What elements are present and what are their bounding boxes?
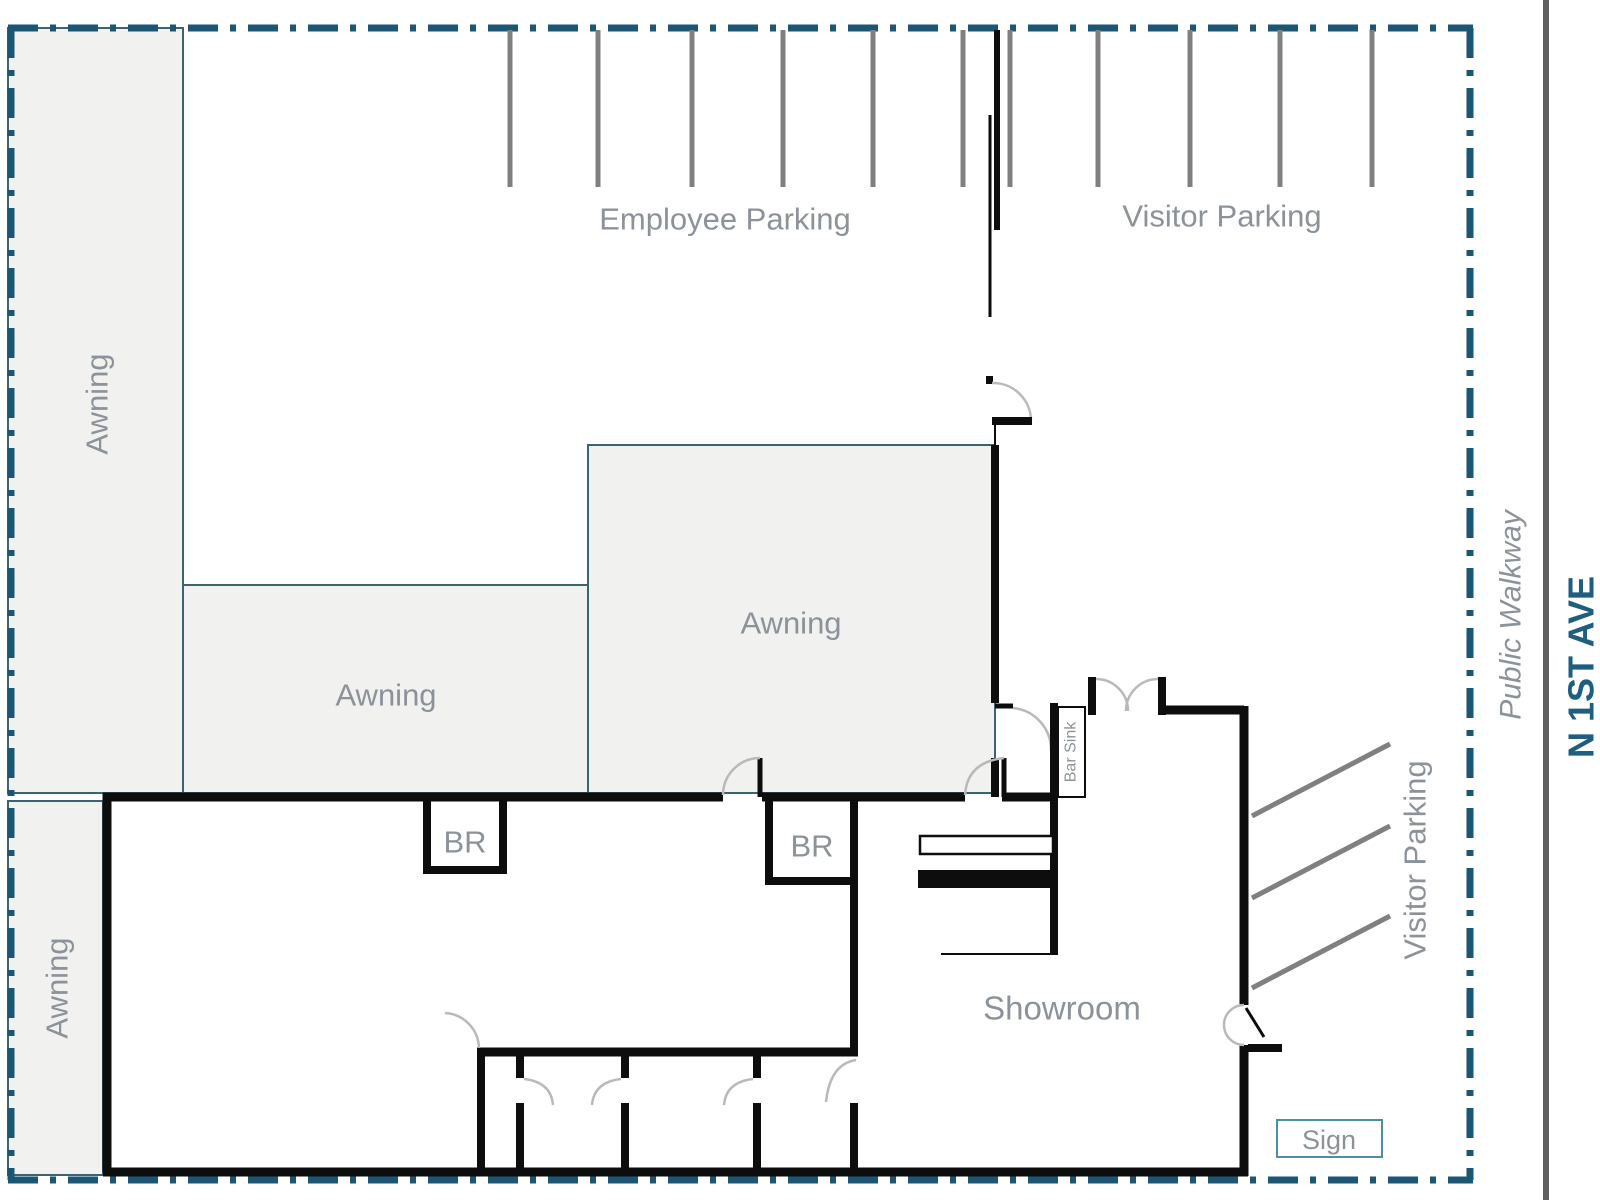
sign-label: Sign — [1302, 1125, 1356, 1155]
stall-line — [1252, 744, 1390, 816]
door-leaf — [1246, 1008, 1264, 1037]
gate-hinge — [986, 376, 993, 384]
door-arc — [524, 1079, 553, 1105]
visitor-parking-diagonals — [1252, 744, 1390, 988]
showroom-label: Showroom — [983, 990, 1141, 1027]
awning-left-label: Awning — [80, 353, 115, 454]
bar-sink-label: Bar Sink — [1063, 721, 1080, 782]
site-plan: Employee Parking Visitor Parking Awning … — [0, 0, 1600, 1200]
parking-stall-lines — [510, 30, 1372, 187]
street-name-label: N 1ST AVE — [1561, 576, 1600, 758]
awning-middle-label: Awning — [335, 678, 436, 713]
visitor-parking-top-label: Visitor Parking — [1122, 199, 1321, 234]
door-arc — [826, 1060, 856, 1102]
visitor-parking-side-label: Visitor Parking — [1398, 760, 1433, 959]
awning-center-label: Awning — [740, 606, 841, 641]
gate-door-arc — [992, 383, 1031, 420]
stall-line — [1252, 826, 1390, 898]
double-door-arc-right — [1126, 679, 1158, 711]
door-arc — [724, 1079, 753, 1105]
br2-label: BR — [790, 829, 833, 864]
double-door-arc-left — [1096, 679, 1128, 711]
counter-outline — [920, 836, 1053, 854]
employee-parking-label: Employee Parking — [599, 202, 851, 237]
public-walkway-label: Public Walkway — [1495, 508, 1528, 720]
door-arc — [592, 1079, 621, 1105]
br1-label: BR — [443, 825, 486, 860]
back-rooms-entry-arc — [445, 1013, 479, 1048]
site-plan-drawing: Employee Parking Visitor Parking Awning … — [0, 0, 1600, 1200]
showroom-east-door-arc — [1224, 1005, 1244, 1045]
awning-areas — [8, 28, 995, 1175]
counter-solid-bar — [918, 870, 1057, 888]
stall-line — [1252, 916, 1390, 988]
door-arc — [1013, 708, 1051, 751]
awning-lower-left-label: Awning — [40, 937, 75, 1038]
showroom-counter — [918, 836, 1058, 954]
